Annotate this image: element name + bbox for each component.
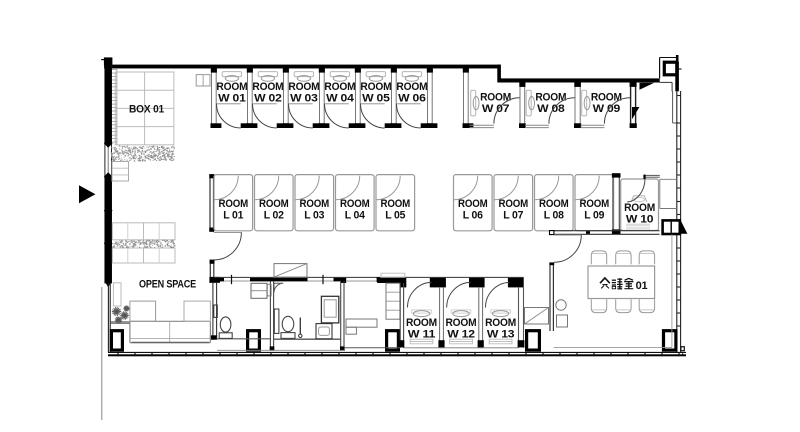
svg-text:ROOM: ROOM bbox=[300, 198, 330, 210]
svg-text:ROOM: ROOM bbox=[446, 317, 477, 329]
svg-text:ROOM: ROOM bbox=[499, 198, 529, 210]
svg-text:ROOM: ROOM bbox=[381, 198, 411, 210]
svg-text:ROOM: ROOM bbox=[580, 198, 610, 210]
svg-text:ROOM: ROOM bbox=[458, 198, 488, 210]
svg-text:W 01: W 01 bbox=[218, 92, 246, 104]
svg-text:L 04: L 04 bbox=[345, 209, 366, 221]
svg-text:ROOM: ROOM bbox=[539, 198, 569, 210]
svg-text:W 13: W 13 bbox=[487, 328, 515, 340]
svg-text:L 02: L 02 bbox=[264, 209, 284, 221]
svg-text:OPEN SPACE: OPEN SPACE bbox=[139, 278, 196, 290]
svg-text:W 12: W 12 bbox=[447, 328, 475, 340]
svg-text:W 02: W 02 bbox=[254, 92, 282, 104]
svg-text:ROOM: ROOM bbox=[340, 198, 370, 210]
svg-text:ROOM: ROOM bbox=[252, 81, 283, 93]
svg-text:ROOM: ROOM bbox=[624, 202, 655, 214]
svg-text:L 08: L 08 bbox=[544, 209, 564, 221]
svg-text:L 07: L 07 bbox=[503, 209, 523, 221]
svg-text:ROOM: ROOM bbox=[485, 317, 516, 329]
svg-text:ROOM: ROOM bbox=[396, 81, 427, 93]
svg-text:ROOM: ROOM bbox=[259, 198, 289, 210]
svg-text:W 11: W 11 bbox=[408, 328, 436, 340]
svg-text:W 03: W 03 bbox=[290, 92, 318, 104]
svg-text:ROOM: ROOM bbox=[219, 198, 249, 210]
svg-text:01: 01 bbox=[636, 280, 648, 292]
svg-text:ROOM: ROOM bbox=[216, 81, 247, 93]
svg-text:L 05: L 05 bbox=[385, 209, 405, 221]
svg-text:BOX 01: BOX 01 bbox=[129, 104, 164, 116]
svg-text:W 05: W 05 bbox=[362, 92, 390, 104]
svg-text:ROOM: ROOM bbox=[324, 81, 355, 93]
svg-text:ROOM: ROOM bbox=[360, 81, 391, 93]
svg-text:ROOM: ROOM bbox=[288, 81, 319, 93]
svg-text:W 06: W 06 bbox=[398, 92, 426, 104]
svg-text:W 04: W 04 bbox=[326, 92, 355, 104]
svg-text:L 09: L 09 bbox=[584, 209, 604, 221]
svg-text:L 06: L 06 bbox=[463, 209, 483, 221]
svg-text:ROOM: ROOM bbox=[406, 317, 437, 329]
svg-text:L 01: L 01 bbox=[223, 209, 243, 221]
svg-text:W 10: W 10 bbox=[626, 214, 654, 226]
svg-text:L 03: L 03 bbox=[304, 209, 324, 221]
